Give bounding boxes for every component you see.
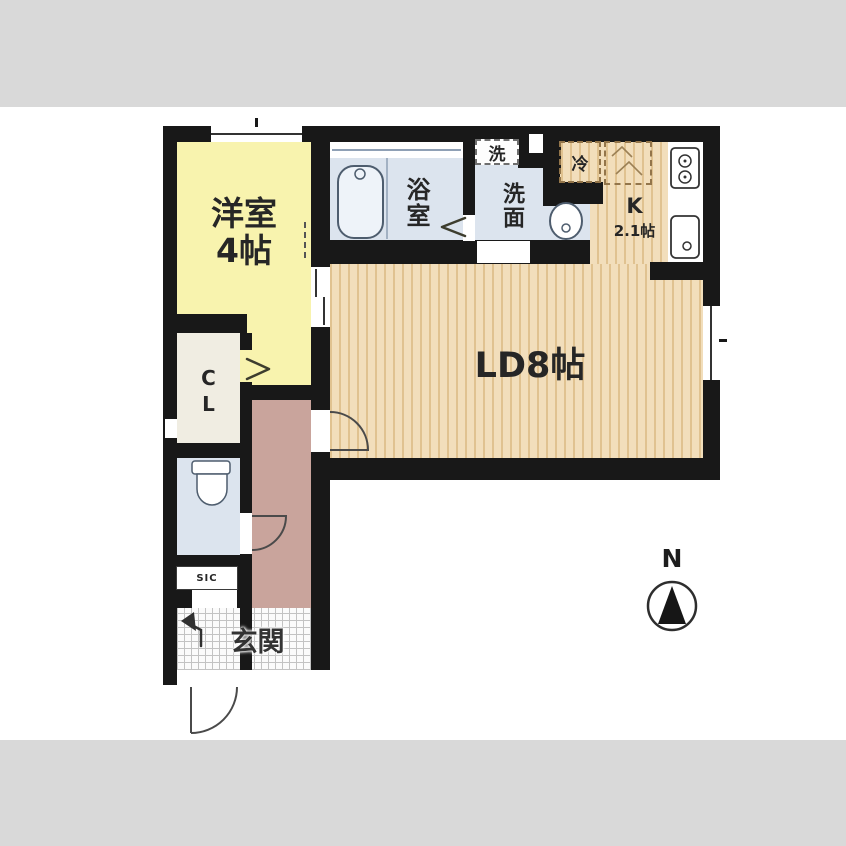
door-arc-entrance [191,687,237,733]
window-tick [255,118,258,127]
window-right [703,306,720,380]
kitchen-abbr-label: K [607,194,662,218]
window-glass-line [332,149,461,151]
wall-segment [163,443,252,458]
sliding-door-panel [315,269,317,297]
window-glass-line [211,133,302,135]
washroom-label: 洗面 [495,171,527,241]
refrigerator-space: 冷 [559,141,601,183]
window-glass-line [710,306,712,380]
kitchen-counter [668,142,703,262]
western-room-name: 洋室 [177,196,311,233]
bathroom-label: 浴室 [399,167,434,239]
western-room-label: 洋室 4帖 [177,196,311,270]
opening-bath-door [463,215,475,241]
room-washroom-floor-ext [543,204,590,240]
floor-plan: 洗 冷 SIC [0,0,846,846]
wall-segment [703,126,720,480]
closet-label-wrap: CL [177,348,240,436]
entrance-door-slab [190,670,237,685]
bathroom-window-band [330,142,463,158]
wall-segment [330,458,720,480]
washing-machine-space: 洗 [475,139,519,165]
entrance-step [192,590,237,608]
door-slab-washroom [477,241,530,263]
wall-inset-square [529,134,543,153]
closet-label: CL [197,366,221,418]
wall-segment [543,168,560,206]
room-western-floor-lower [247,314,311,385]
window-top [211,126,302,142]
room-corridor-floor [252,400,311,608]
north-arrow-icon [658,586,686,624]
overhead-cabinet-space [604,141,652,185]
wall-segment [247,385,330,400]
window-tick [719,339,727,342]
shoe-closet-label: SIC [196,573,217,584]
western-room-size: 4帖 [177,233,311,270]
sliding-door [311,267,330,327]
sliding-door-panel [323,297,325,325]
door-gap-toilet [240,513,252,554]
wall-segment [163,314,247,333]
opening-closet [240,350,252,382]
washing-machine-label: 洗 [489,140,506,165]
wall-segment [560,182,603,204]
wall-segment [311,240,590,264]
shoe-closet-box: SIC [176,566,238,590]
door-gap-corridor-ld [311,410,330,452]
room-toilet-floor [177,458,240,555]
kitchen-size-label: 2.1帖 [597,220,672,241]
refrigerator-label: 冷 [572,150,589,175]
wall-segment [650,262,703,280]
living-dining-label: LD8帖 [425,337,635,388]
wall-inset-square [165,419,177,438]
compass-icon [648,582,696,630]
entrance-label: 玄関 [200,620,315,659]
compass-north-label: N [657,544,687,573]
